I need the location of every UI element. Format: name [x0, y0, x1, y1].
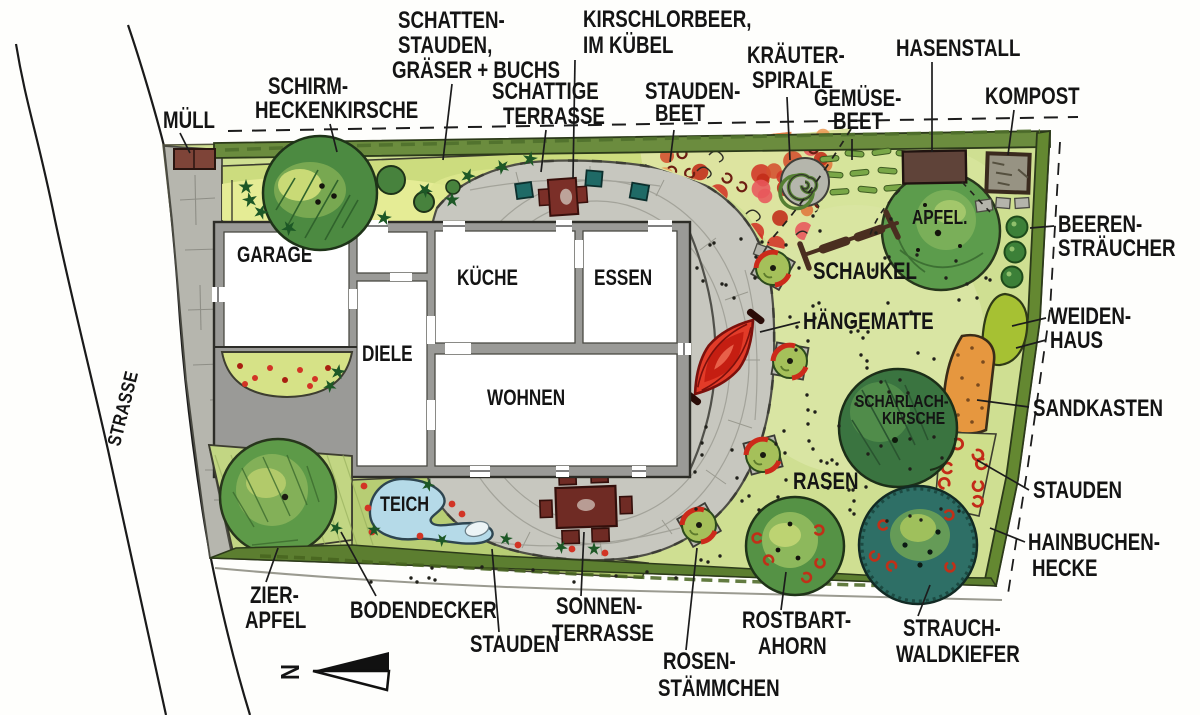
svg-text:RASEN: RASEN: [793, 468, 859, 495]
svg-text:WOHNEN: WOHNEN: [487, 386, 565, 411]
svg-text:KIRSCHE: KIRSCHE: [882, 408, 945, 428]
svg-text:HECKE: HECKE: [1032, 555, 1098, 582]
svg-text:SCHAUKEL: SCHAUKEL: [813, 258, 917, 285]
svg-text:STAUDEN: STAUDEN: [1033, 477, 1122, 504]
svg-text:BEET: BEET: [655, 100, 705, 127]
svg-text:STAUDEN,: STAUDEN,: [398, 32, 492, 59]
svg-text:WALDKIEFER: WALDKIEFER: [896, 641, 1020, 668]
svg-text:TERRASSE: TERRASSE: [503, 103, 605, 130]
svg-text:BEEREN-: BEEREN-: [1058, 211, 1142, 238]
svg-text:TERRASSE: TERRASSE: [552, 620, 654, 647]
svg-text:BEET: BEET: [833, 108, 883, 135]
svg-text:ROSEN-: ROSEN-: [663, 648, 736, 675]
svg-text:KÜCHE: KÜCHE: [457, 265, 518, 291]
svg-text:SANDKASTEN: SANDKASTEN: [1033, 395, 1163, 422]
svg-text:TEICH: TEICH: [380, 492, 429, 515]
svg-text:KIRSCHLORBEER,: KIRSCHLORBEER,: [583, 6, 751, 33]
svg-text:ZIER-: ZIER-: [250, 582, 299, 609]
svg-text:KOMPOST: KOMPOST: [985, 83, 1080, 110]
svg-text:SCHATTIGE: SCHATTIGE: [492, 78, 599, 105]
svg-text:STÄMMCHEN: STÄMMCHEN: [658, 675, 780, 702]
svg-text:HECKENKIRSCHE: HECKENKIRSCHE: [255, 97, 418, 124]
svg-text:AHORN: AHORN: [758, 633, 827, 660]
svg-text:ESSEN: ESSEN: [594, 266, 652, 291]
svg-text:HÄNGEMATTE: HÄNGEMATTE: [803, 308, 934, 335]
svg-text:HAUS: HAUS: [1050, 327, 1103, 354]
svg-text:APFEL: APFEL: [245, 607, 306, 634]
svg-text:IM KÜBEL: IM KÜBEL: [583, 31, 673, 59]
svg-text:STAUDEN: STAUDEN: [470, 631, 559, 658]
svg-text:MÜLL: MÜLL: [163, 106, 215, 134]
svg-text:APFEL.: APFEL.: [912, 206, 967, 228]
svg-text:SCHIRM-: SCHIRM-: [268, 73, 348, 100]
svg-text:WEIDEN-: WEIDEN-: [1050, 303, 1131, 330]
svg-text:STRÄUCHER: STRÄUCHER: [1058, 235, 1176, 262]
svg-text:KRÄUTER-: KRÄUTER-: [747, 42, 845, 69]
svg-text:SCHATTEN-: SCHATTEN-: [398, 7, 505, 34]
svg-text:SONNEN-: SONNEN-: [556, 593, 642, 620]
svg-text:N: N: [276, 664, 305, 680]
svg-text:STRAUCH-: STRAUCH-: [903, 615, 1001, 642]
svg-text:HASENSTALL: HASENSTALL: [896, 35, 1020, 62]
svg-text:DIELE: DIELE: [362, 342, 413, 367]
svg-text:HAINBUCHEN-: HAINBUCHEN-: [1028, 529, 1160, 556]
svg-text:ROSTBART-: ROSTBART-: [742, 607, 851, 634]
svg-text:BODENDECKER: BODENDECKER: [350, 597, 497, 624]
